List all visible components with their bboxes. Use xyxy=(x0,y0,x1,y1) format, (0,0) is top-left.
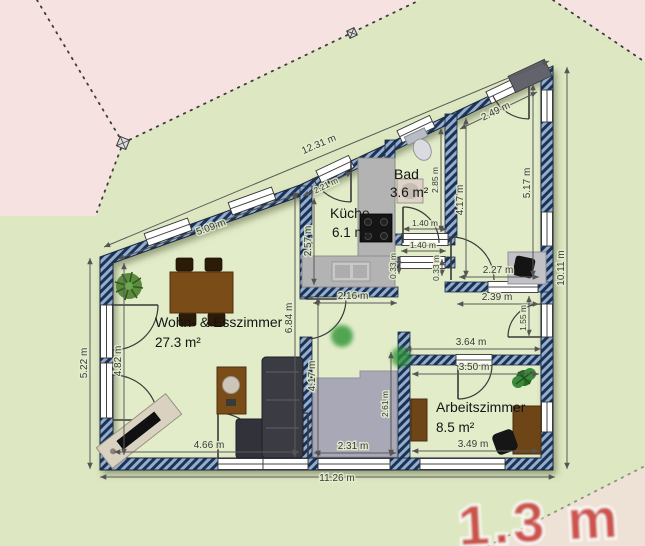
svg-text:3.49 m: 3.49 m xyxy=(458,439,489,450)
svg-text:4.17 m: 4.17 m xyxy=(307,361,318,392)
window[interactable] xyxy=(542,90,553,122)
svg-text:10.11 m: 10.11 m xyxy=(556,250,567,285)
small-desk[interactable] xyxy=(508,252,546,284)
svg-text:8.5 m²: 8.5 m² xyxy=(436,420,475,435)
svg-text:27.3 m²: 27.3 m² xyxy=(155,335,201,350)
svg-text:3.6 m²: 3.6 m² xyxy=(390,185,429,200)
svg-text:2.31 m: 2.31 m xyxy=(338,441,369,452)
window[interactable] xyxy=(542,402,553,432)
svg-text:4.82 m: 4.82 m xyxy=(113,346,124,377)
svg-text:2.27 m: 2.27 m xyxy=(483,265,514,276)
potted-plant[interactable] xyxy=(331,325,353,347)
window[interactable] xyxy=(420,459,505,470)
svg-text:2.39 m: 2.39 m xyxy=(482,292,513,303)
floorplan-canvas: 12.31 m 5.09 m 2.21 m 2.49 m 2.57 m 2.85… xyxy=(0,0,645,546)
svg-text:0.33 m: 0.33 m xyxy=(431,255,441,281)
svg-text:1.40 m: 1.40 m xyxy=(412,218,438,228)
svg-text:2.57 m: 2.57 m xyxy=(303,226,314,257)
potted-plant[interactable] xyxy=(391,347,411,367)
dimension: 0.33 m xyxy=(431,255,442,281)
svg-text:6.1 m²: 6.1 m² xyxy=(332,225,371,240)
svg-text:Wohn- & Esszimmer: Wohn- & Esszimmer xyxy=(155,314,283,330)
svg-text:6.84 m: 6.84 m xyxy=(284,303,295,334)
coffee-table[interactable] xyxy=(217,367,246,414)
scale-watermark: 1.3 m xyxy=(457,486,623,546)
svg-text:Küche: Küche xyxy=(330,205,370,221)
svg-text:3.50 m: 3.50 m xyxy=(459,362,490,373)
svg-text:2.61 m: 2.61 m xyxy=(380,391,390,417)
svg-text:1.55 m: 1.55 m xyxy=(518,305,528,331)
dimension: 0.33 m xyxy=(388,253,399,279)
svg-text:5.22 m: 5.22 m xyxy=(79,348,90,379)
window[interactable] xyxy=(318,459,390,470)
window[interactable] xyxy=(101,305,113,358)
window[interactable] xyxy=(542,212,553,246)
svg-text:2.85 m: 2.85 m xyxy=(430,167,440,193)
svg-text:5.17 m: 5.17 m xyxy=(522,168,533,199)
svg-text:4.17 m: 4.17 m xyxy=(455,185,466,216)
svg-text:0.33 m: 0.33 m xyxy=(388,253,398,279)
svg-text:4.66 m: 4.66 m xyxy=(194,440,225,451)
svg-text:2.16 m: 2.16 m xyxy=(338,291,369,302)
window[interactable] xyxy=(101,363,113,418)
svg-text:1.40 m: 1.40 m xyxy=(410,240,436,250)
door-opening[interactable] xyxy=(542,304,553,337)
window[interactable] xyxy=(218,459,308,470)
office-shelf[interactable] xyxy=(411,399,427,441)
svg-text:3.64 m: 3.64 m xyxy=(456,337,487,348)
wall[interactable] xyxy=(445,114,457,237)
svg-text:Bad: Bad xyxy=(394,166,419,182)
svg-text:11.26 m: 11.26 m xyxy=(319,473,354,484)
kitchen-sink[interactable] xyxy=(332,262,370,281)
svg-text:Arbeitszimmer: Arbeitszimmer xyxy=(436,399,526,415)
